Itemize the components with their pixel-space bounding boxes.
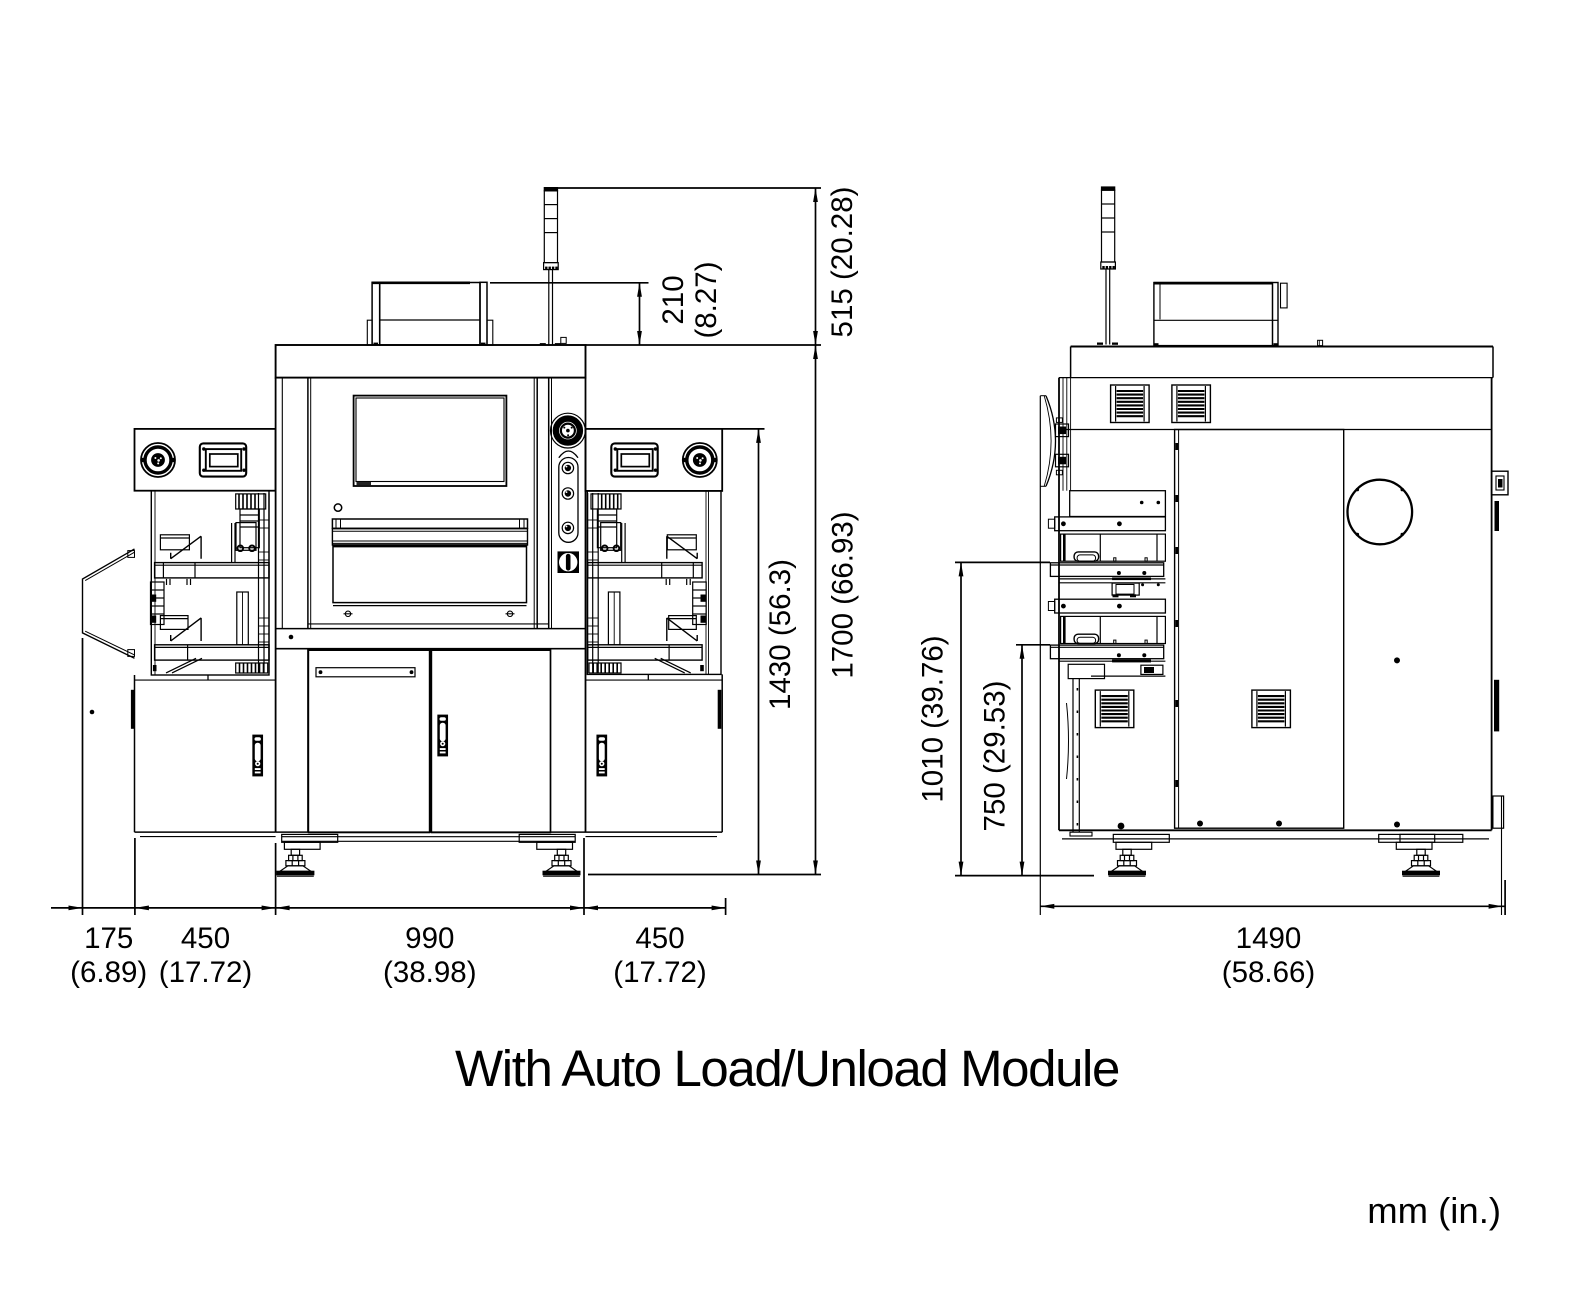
svg-text:(17.72): (17.72) xyxy=(159,956,252,989)
svg-text:With Auto Load/Unload Module: With Auto Load/Unload Module xyxy=(455,1040,1119,1097)
svg-text:(58.66): (58.66) xyxy=(1222,956,1315,989)
svg-text:1010 (39.76): 1010 (39.76) xyxy=(917,635,950,802)
svg-text:450: 450 xyxy=(181,922,230,955)
svg-text:175: 175 xyxy=(84,922,133,955)
svg-text:(17.72): (17.72) xyxy=(613,956,706,989)
svg-text:1490: 1490 xyxy=(1236,922,1302,955)
svg-text:(8.27): (8.27) xyxy=(690,261,723,338)
svg-text:(6.89): (6.89) xyxy=(70,956,147,989)
svg-text:210: 210 xyxy=(657,275,690,324)
svg-text:990: 990 xyxy=(405,922,454,955)
svg-text:1430 (56.3): 1430 (56.3) xyxy=(764,559,797,710)
svg-text:mm (in.): mm (in.) xyxy=(1367,1190,1501,1231)
svg-text:1700 (66.93): 1700 (66.93) xyxy=(827,511,860,678)
svg-text:450: 450 xyxy=(635,922,684,955)
svg-text:750 (29.53): 750 (29.53) xyxy=(979,681,1012,832)
svg-text:515 (20.28): 515 (20.28) xyxy=(826,187,859,338)
svg-text:(38.98): (38.98) xyxy=(383,956,476,989)
